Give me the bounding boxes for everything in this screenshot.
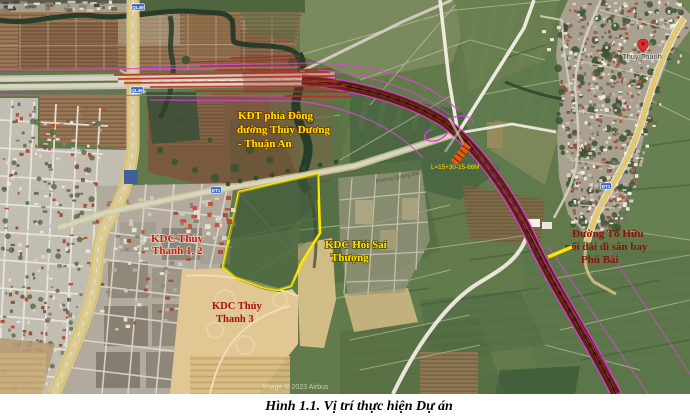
- svg-text:KĐT phía Đông: KĐT phía Đông: [238, 110, 313, 122]
- svg-text:KDC Thủy: KDC Thủy: [212, 301, 262, 312]
- svg-text:- Thuận An: - Thuận An: [238, 138, 292, 150]
- svg-text:Thanh 1, 2: Thanh 1, 2: [152, 245, 203, 257]
- svg-text:ĐT1: ĐT1: [212, 188, 221, 193]
- svg-text:QL49: QL49: [132, 5, 144, 10]
- svg-text:Image © 2023 Airbus: Image © 2023 Airbus: [263, 383, 329, 391]
- svg-text:ĐT1: ĐT1: [602, 184, 611, 189]
- svg-text:KDC Hói Sai: KDC Hói Sai: [325, 239, 387, 251]
- svg-text:Thượng: Thượng: [331, 252, 369, 264]
- svg-text:QL49: QL49: [131, 88, 143, 93]
- svg-text:Phú Bài: Phú Bài: [581, 254, 619, 266]
- svg-text:nối dài đi sân bay: nối dài đi sân bay: [565, 241, 648, 253]
- svg-text:đường Thủy Dương: đường Thủy Dương: [237, 124, 331, 136]
- svg-text:Thuy Thanh: Thuy Thanh: [622, 52, 662, 61]
- svg-text:KDC Thủy: KDC Thủy: [151, 233, 204, 245]
- svg-text:L=15+30-15-66M: L=15+30-15-66M: [431, 164, 479, 171]
- svg-text:Đường Tố Hữu: Đường Tố Hữu: [572, 228, 644, 240]
- svg-text:Thanh 3: Thanh 3: [216, 314, 254, 325]
